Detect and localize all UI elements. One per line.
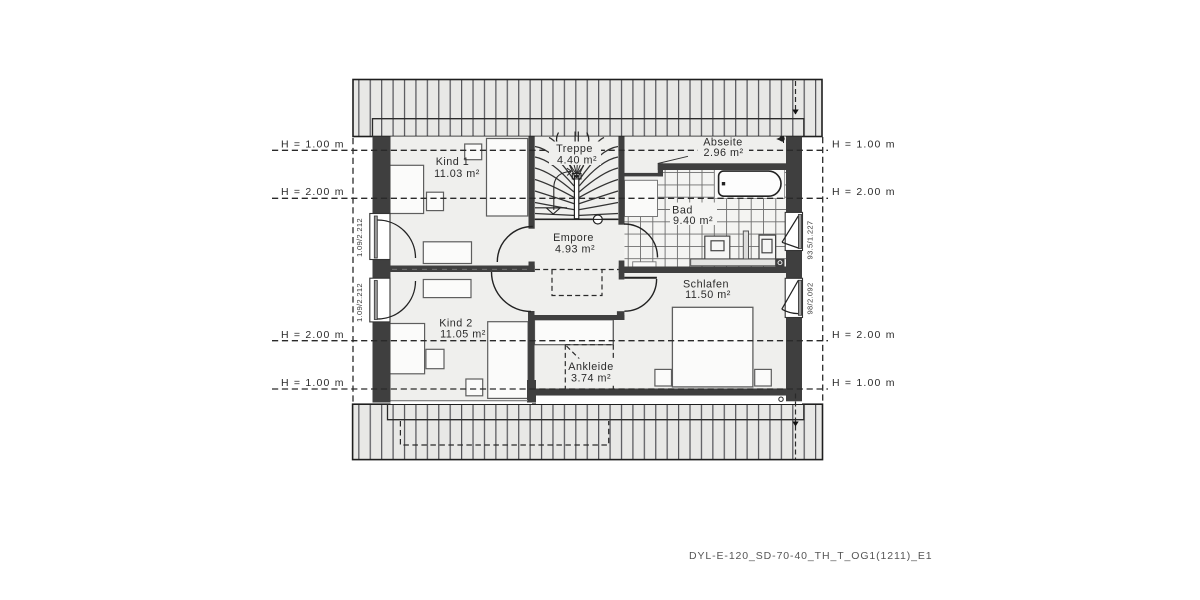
svg-text:DYL-E-120_SD-70-40_TH_T_OG1(12: DYL-E-120_SD-70-40_TH_T_OG1(1211)_E1 [689,550,932,562]
svg-text:H = 1.00 m: H = 1.00 m [832,377,896,389]
svg-text:2.96 m²: 2.96 m² [703,147,743,159]
svg-text:H = 2.00 m: H = 2.00 m [832,329,896,341]
svg-text:4.93 m²: 4.93 m² [555,244,595,256]
svg-text:H = 2.00 m: H = 2.00 m [281,186,345,198]
svg-text:H = 1.00 m: H = 1.00 m [281,377,345,389]
svg-text:9.40 m²: 9.40 m² [673,215,713,227]
svg-text:11.05 m²: 11.05 m² [440,329,486,341]
svg-text:H = 1.00 m: H = 1.00 m [832,138,896,150]
svg-text:3.74 m²: 3.74 m² [571,373,611,385]
svg-text:1.09/2.212: 1.09/2.212 [355,218,364,257]
svg-text:Treppe: Treppe [556,143,593,155]
svg-text:93.5/1.227: 93.5/1.227 [805,221,814,260]
svg-text:H = 2.00 m: H = 2.00 m [832,186,896,198]
svg-text:98/2.092: 98/2.092 [805,283,814,315]
svg-text:Kind 1: Kind 1 [436,156,470,168]
svg-text:Empore: Empore [553,232,594,244]
svg-text:4.40 m²: 4.40 m² [557,155,597,167]
svg-text:1.09/2.212: 1.09/2.212 [355,283,364,322]
svg-text:H = 2.00 m: H = 2.00 m [281,329,345,341]
svg-text:11.03 m²: 11.03 m² [434,168,480,180]
svg-text:Ankleide: Ankleide [568,361,613,373]
svg-text:11.50 m²: 11.50 m² [685,289,731,301]
svg-text:H = 1.00 m: H = 1.00 m [281,138,345,150]
